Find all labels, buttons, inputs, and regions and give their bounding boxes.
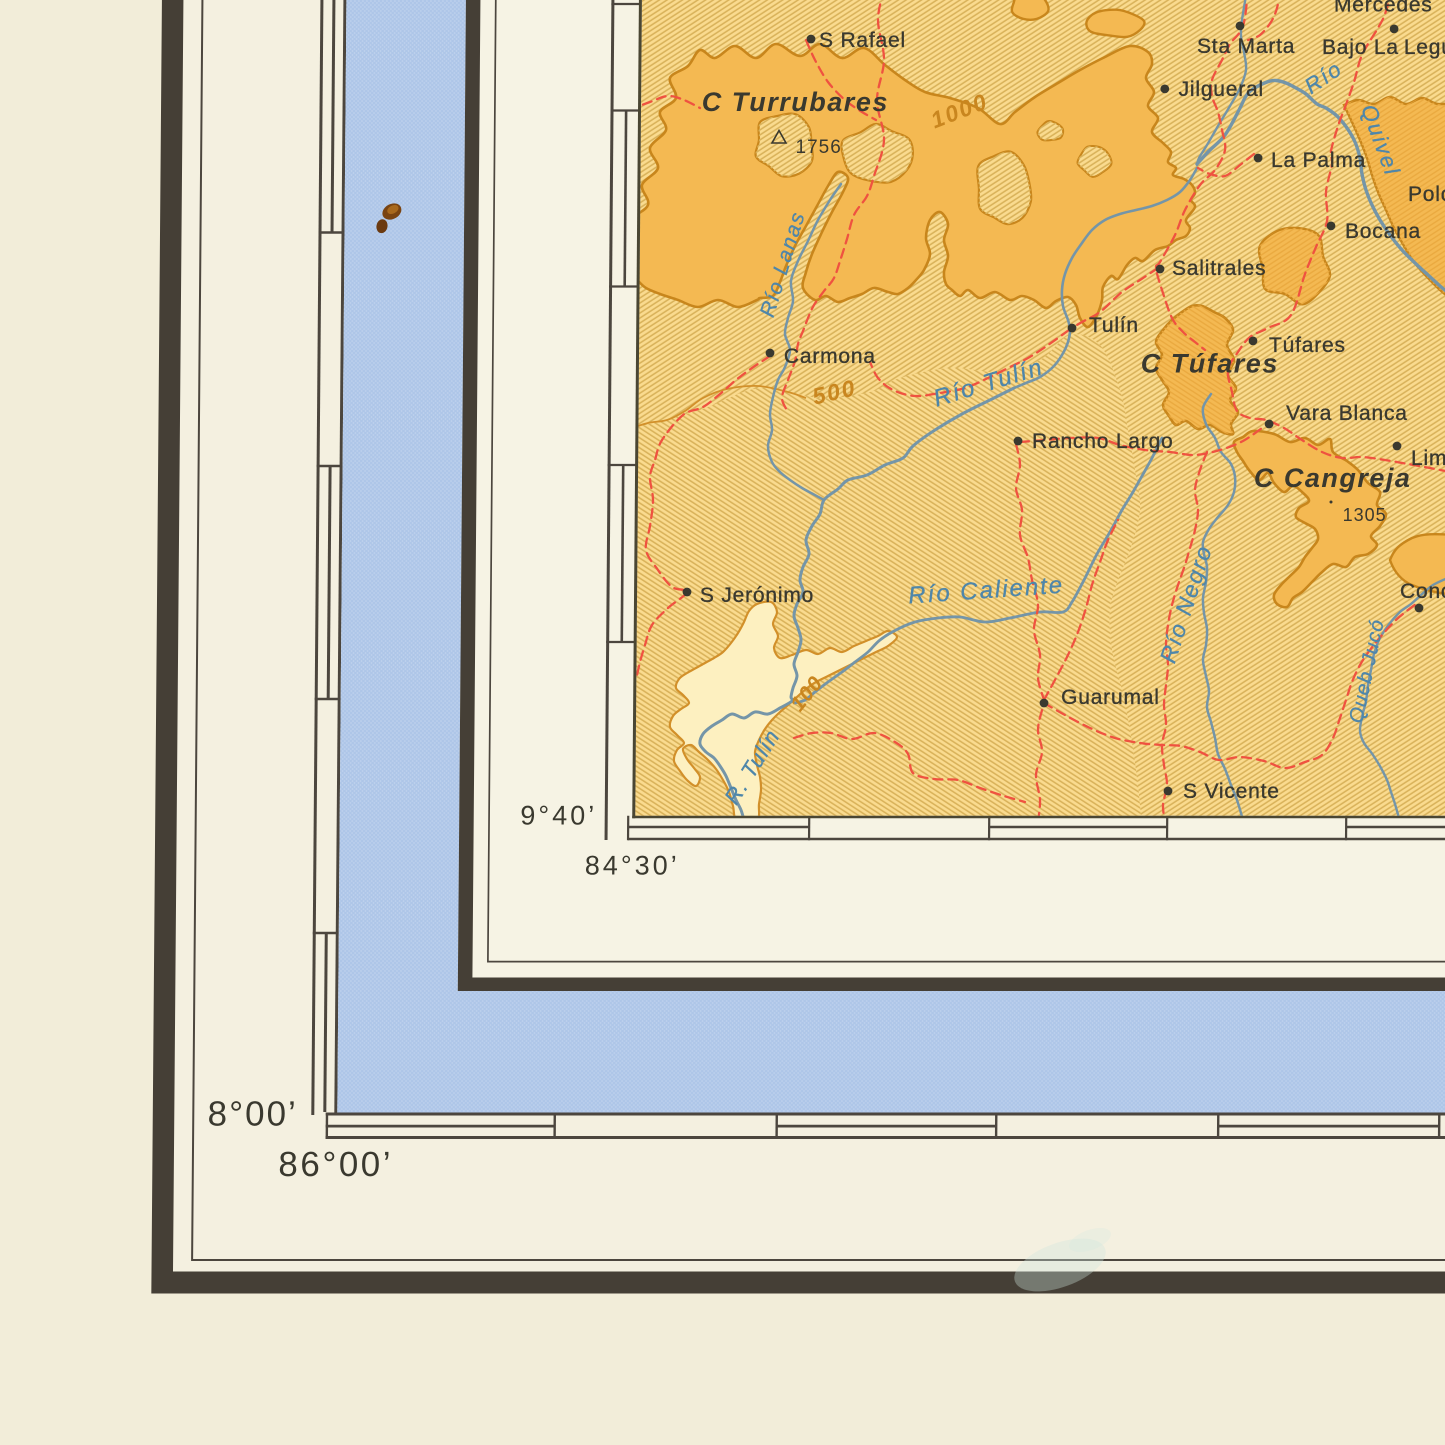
svg-text:Vara Blanca: Vara Blanca: [1286, 402, 1408, 425]
svg-text:Carmona: Carmona: [784, 345, 876, 368]
svg-text:C Turrubares: C Turrubares: [702, 87, 889, 117]
svg-text:C Cangreja: C Cangreja: [1254, 463, 1412, 493]
svg-text:9°40’: 9°40’: [520, 801, 597, 831]
svg-text:1756: 1756: [796, 137, 842, 158]
svg-text:1305: 1305: [1343, 505, 1387, 525]
svg-text:Túfares: Túfares: [1269, 334, 1346, 357]
svg-text:Jilgueral: Jilgueral: [1179, 78, 1264, 101]
svg-text:Polonia: Polonia: [1408, 183, 1445, 206]
svg-text:S Rafael: S Rafael: [819, 29, 906, 52]
svg-text:86°00’: 86°00’: [278, 1145, 393, 1184]
svg-text:84°30’: 84°30’: [585, 851, 680, 881]
svg-text:C Túfares: C Túfares: [1141, 348, 1279, 378]
svg-text:Salitrales: Salitrales: [1172, 257, 1266, 280]
svg-text:Limón: Limón: [1411, 447, 1445, 470]
svg-text:Tulín: Tulín: [1089, 314, 1139, 337]
svg-text:Sta Marta: Sta Marta: [1197, 35, 1295, 58]
svg-text:Guarumal: Guarumal: [1061, 686, 1160, 709]
svg-text:La Palma: La Palma: [1271, 149, 1366, 172]
svg-text:Conc: Conc: [1400, 580, 1445, 603]
svg-text:Mercedes: Mercedes: [1334, 0, 1433, 16]
svg-text:Bocana: Bocana: [1345, 220, 1421, 243]
svg-text:Rancho Largo: Rancho Largo: [1032, 430, 1174, 453]
svg-text:S Jerónimo: S Jerónimo: [700, 584, 814, 607]
svg-text:Bajo La Legua: Bajo La Legua: [1322, 36, 1445, 59]
svg-text:8°00’: 8°00’: [207, 1095, 297, 1134]
svg-text:S Vicente: S Vicente: [1183, 780, 1280, 803]
